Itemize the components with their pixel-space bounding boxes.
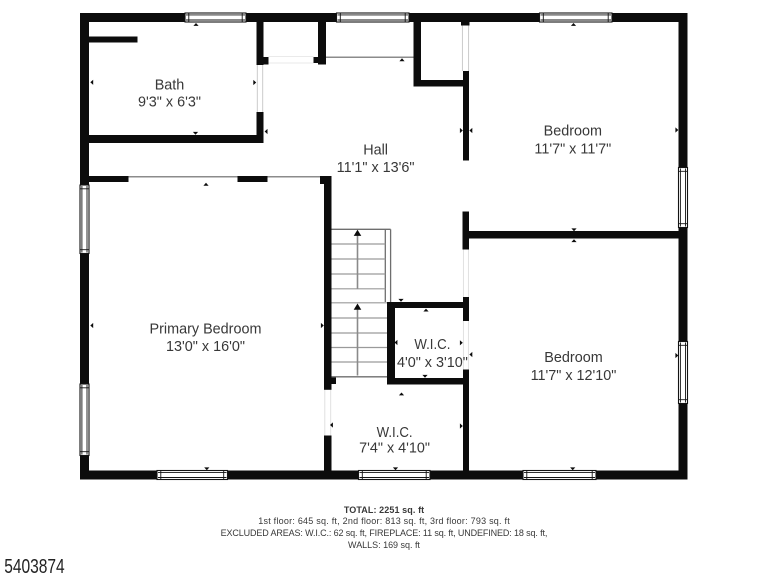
svg-text:W.I.C.: W.I.C. xyxy=(414,337,450,353)
svg-text:Bedroom: Bedroom xyxy=(544,350,602,366)
svg-text:Bedroom: Bedroom xyxy=(544,123,602,139)
svg-text:Primary Bedroom: Primary Bedroom xyxy=(150,321,262,337)
svg-text:Bath: Bath xyxy=(155,77,185,93)
svg-text:EXCLUDED AREAS: W.I.C.: 62 sq.: EXCLUDED AREAS: W.I.C.: 62 sq. ft, FIREP… xyxy=(221,528,548,538)
svg-text:Hall: Hall xyxy=(363,142,388,158)
svg-text:11'7" x 12'10": 11'7" x 12'10" xyxy=(531,368,617,384)
svg-text:7'4" x 4'10": 7'4" x 4'10" xyxy=(359,441,430,457)
svg-text:TOTAL: 2251 sq. ft: TOTAL: 2251 sq. ft xyxy=(344,505,424,515)
svg-text:1st floor: 645 sq. ft, 2nd flo: 1st floor: 645 sq. ft, 2nd floor: 813 sq… xyxy=(258,516,510,526)
svg-text:4'0" x 3'10": 4'0" x 3'10" xyxy=(397,355,468,371)
svg-text:9'3" x 6'3": 9'3" x 6'3" xyxy=(138,94,201,110)
svg-text:5403874: 5403874 xyxy=(4,556,64,576)
svg-text:13'0" x 16'0": 13'0" x 16'0" xyxy=(166,339,245,355)
svg-text:W.I.C.: W.I.C. xyxy=(377,425,413,441)
svg-text:11'7" x 11'7": 11'7" x 11'7" xyxy=(534,141,611,157)
svg-text:WALLS: 169 sq. ft: WALLS: 169 sq. ft xyxy=(348,540,420,550)
svg-text:11'1" x 13'6": 11'1" x 13'6" xyxy=(337,160,415,176)
